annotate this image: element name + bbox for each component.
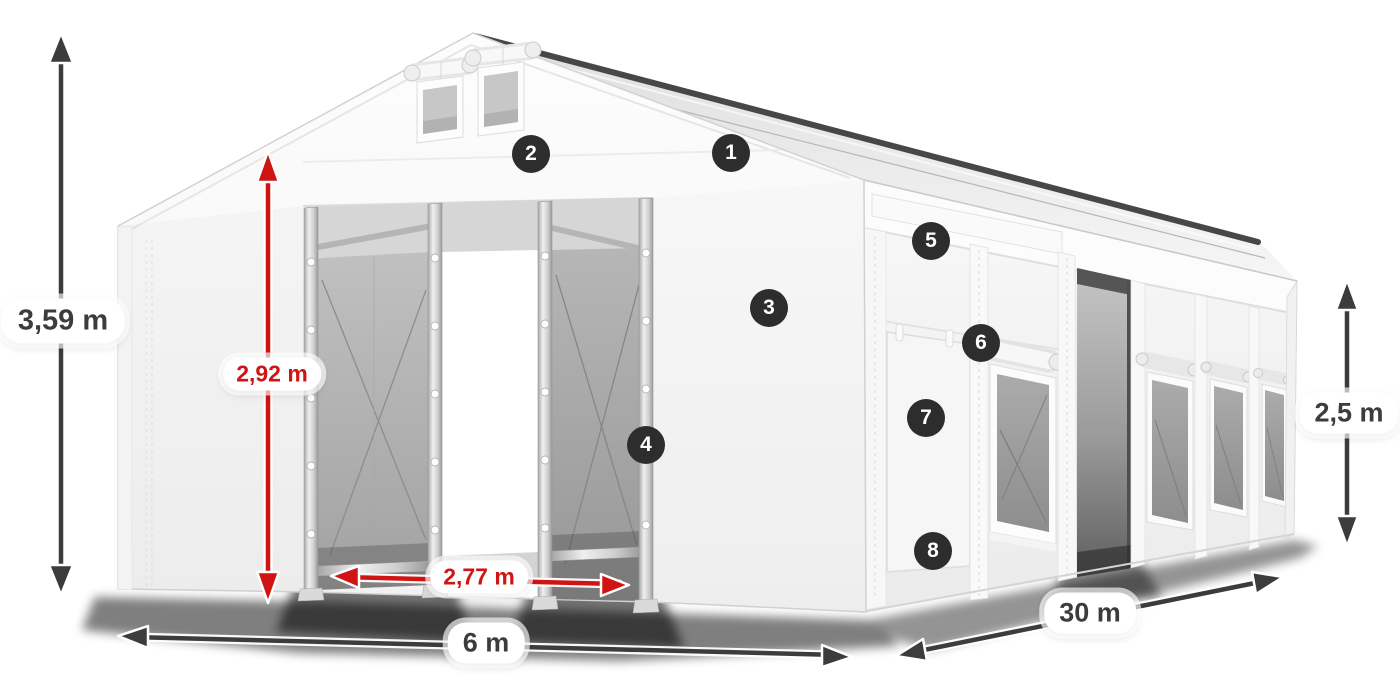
feature-marker-7: 7 xyxy=(907,399,945,437)
dimension-label-side-height: 2,5 m xyxy=(1299,393,1398,434)
feature-marker-2: 2 xyxy=(512,135,550,173)
feature-marker-1: 1 xyxy=(712,134,750,172)
front-right-opening xyxy=(552,248,641,601)
dimension-label-gable-width: 6 m xyxy=(448,623,525,664)
feature-marker-6: 6 xyxy=(962,324,1000,362)
front-left-opening xyxy=(318,252,430,590)
feature-marker-4: 4 xyxy=(627,426,665,464)
dimension-label-length: 30 m xyxy=(1044,593,1136,634)
tent-illustration xyxy=(0,0,1400,700)
side-door-opening xyxy=(1077,268,1134,577)
dimension-label-entrance-width: 2,77 m xyxy=(430,561,528,594)
dimension-label-entrance-height: 2,92 m xyxy=(223,358,321,391)
feature-marker-3: 3 xyxy=(750,289,788,327)
feature-marker-8: 8 xyxy=(914,532,952,570)
dimension-label-total-height: 3,59 m xyxy=(1,299,125,344)
feature-marker-5: 5 xyxy=(912,222,950,260)
front-entrance xyxy=(298,197,659,613)
product-dimension-diagram: 3,59 m 2,92 m 2,77 m 6 m 30 m 2,5 m 1 2 … xyxy=(0,0,1400,700)
front-centre-gap xyxy=(442,250,540,597)
